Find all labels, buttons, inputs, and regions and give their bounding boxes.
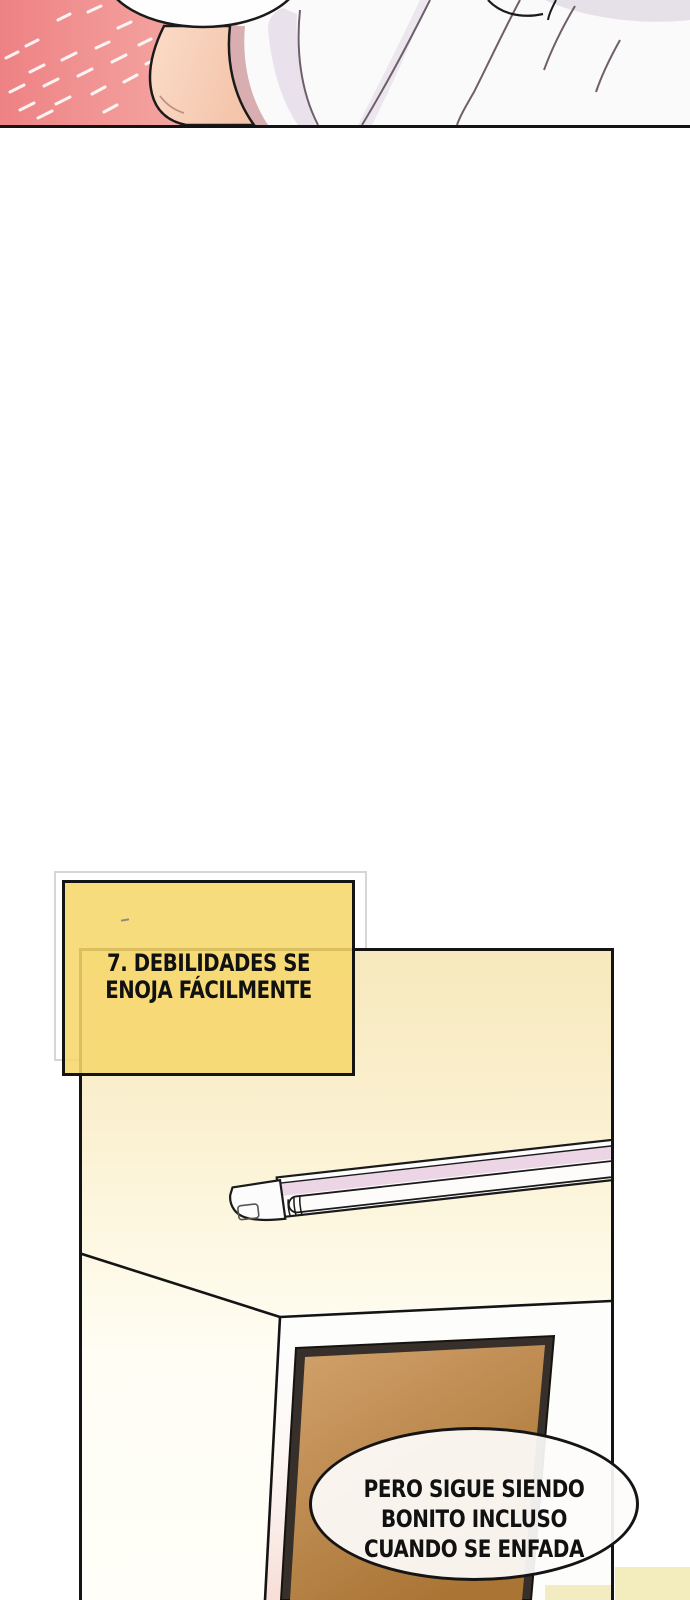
speech-text: PERO SIGUE SIENDO BONITO INCLUSO CUANDO …	[340, 1474, 609, 1564]
chapter-title-line-2: ENOJA FÁCILMENTE	[91, 977, 326, 1004]
chapter-title-line-1: 7. DEBILIDADES SE	[91, 950, 326, 977]
chapter-title-box: 7. DEBILIDADES SE ENOJA FÁCILMENTE	[62, 880, 355, 1076]
shirt-art	[238, 0, 690, 125]
speech-line-3: CUANDO SE ENFADA	[340, 1534, 609, 1564]
next-panel-peek-inner	[545, 1585, 611, 1600]
chapter-title: 7. DEBILIDADES SE ENOJA FÁCILMENTE	[91, 950, 326, 1004]
speech-line-2: BONITO INCLUSO	[340, 1504, 609, 1534]
speech-line-1: PERO SIGUE SIENDO	[340, 1474, 609, 1504]
stray-mark	[121, 918, 129, 921]
flashback-panel	[0, 0, 690, 128]
next-panel-peek	[615, 1567, 690, 1600]
ceiling-light-fixture	[228, 1137, 611, 1224]
webtoon-page: { "comic": { "chapter_box": { "line1": "…	[0, 0, 690, 1600]
flashback-art	[0, 0, 690, 125]
speech-bubble: PERO SIGUE SIENDO BONITO INCLUSO CUANDO …	[309, 1427, 639, 1581]
